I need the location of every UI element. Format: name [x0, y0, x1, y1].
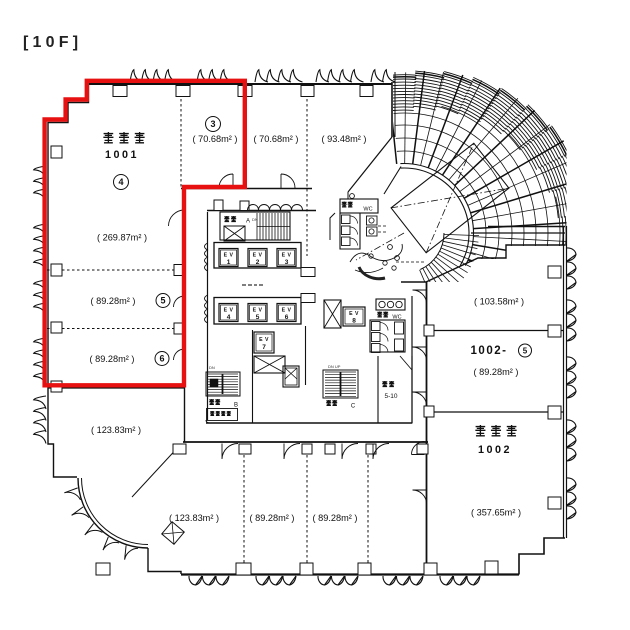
svg-text:E V: E V — [224, 308, 234, 314]
svg-text:1002: 1002 — [478, 444, 512, 456]
svg-text:( 70.68m² ): ( 70.68m² ) — [254, 134, 299, 144]
svg-text:DN: DN — [252, 217, 258, 222]
svg-text:( 89.28m² ): ( 89.28m² ) — [90, 354, 135, 364]
svg-text:5-10: 5-10 — [384, 393, 397, 400]
svg-text:( 269.87m² ): ( 269.87m² ) — [97, 233, 147, 243]
svg-text:C: C — [351, 404, 356, 410]
svg-text:1001: 1001 — [105, 149, 139, 161]
svg-text:4: 4 — [227, 314, 231, 321]
svg-text:5: 5 — [160, 296, 165, 306]
svg-text:E V: E V — [282, 253, 292, 259]
svg-text:B: B — [234, 403, 238, 409]
svg-text:E V: E V — [259, 337, 269, 343]
svg-text:1002-: 1002- — [471, 345, 508, 357]
svg-text:A: A — [246, 219, 250, 225]
svg-text:( 89.28m² ): ( 89.28m² ) — [474, 367, 519, 377]
svg-text:( 89.28m² ): ( 89.28m² ) — [250, 513, 295, 523]
svg-text:7: 7 — [262, 344, 266, 351]
svg-text:6: 6 — [285, 314, 289, 321]
svg-text:E V: E V — [282, 308, 292, 314]
svg-text:( 70.68m² ): ( 70.68m² ) — [193, 134, 238, 144]
svg-text:5: 5 — [256, 314, 260, 321]
svg-text:6: 6 — [159, 354, 164, 364]
svg-text:( 123.83m² ): ( 123.83m² ) — [91, 425, 141, 435]
svg-text:( 89.28m² ): ( 89.28m² ) — [313, 513, 358, 523]
svg-text:( 123.83m² ): ( 123.83m² ) — [169, 513, 219, 523]
svg-text:( 93.48m² ): ( 93.48m² ) — [322, 134, 367, 144]
svg-text:( 103.58m² ): ( 103.58m² ) — [474, 297, 524, 307]
svg-text:3: 3 — [285, 259, 289, 266]
svg-text:1: 1 — [227, 259, 231, 266]
svg-text:DN: DN — [209, 365, 215, 370]
svg-text:3: 3 — [210, 119, 215, 129]
svg-text:E V: E V — [253, 308, 263, 314]
svg-text:4: 4 — [118, 177, 123, 187]
svg-text:2: 2 — [256, 259, 260, 266]
svg-text:8: 8 — [352, 318, 356, 325]
svg-text:[10F]: [10F] — [23, 34, 82, 51]
svg-text:( 89.28m² ): ( 89.28m² ) — [91, 296, 136, 306]
svg-text:E V: E V — [224, 253, 234, 259]
svg-text:DN UP: DN UP — [328, 364, 341, 369]
svg-text:E V: E V — [253, 253, 263, 259]
svg-text:( 357.65m² ): ( 357.65m² ) — [471, 508, 521, 518]
svg-text:5: 5 — [523, 346, 528, 355]
svg-text:WC: WC — [363, 207, 372, 213]
svg-text:E V: E V — [349, 311, 359, 317]
